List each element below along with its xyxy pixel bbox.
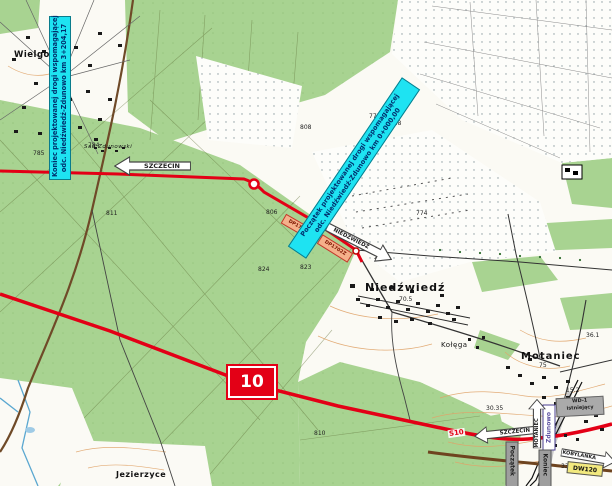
wd1-line2: istniejący xyxy=(557,404,603,413)
spot-number: 810 xyxy=(314,430,325,437)
annotation-line1: Koniec projektowanej drogi wspomagającej xyxy=(51,19,60,177)
annotation-koniec-drogi: Koniec projektowanej drogi wspomagającej… xyxy=(49,16,71,180)
arrow-label: SZCZECIN xyxy=(134,156,190,176)
direction-arrow-motaniec: MOTANIEC xyxy=(528,399,546,449)
spot-number: 70.5 xyxy=(399,296,412,303)
annotation-line2: odc. Niedźwiedź-Zdunowo km 3+204,17 xyxy=(60,19,69,177)
spot-number: 823 xyxy=(300,264,311,271)
spot-number: 824 xyxy=(258,266,269,273)
wd1-existing-label: WD-1 istniejący xyxy=(556,396,605,417)
spot-number: 774 xyxy=(416,210,427,217)
spot-number: 811 xyxy=(106,210,117,217)
arrow-label: MOTANIEC xyxy=(528,419,546,447)
spot-number: 36.1 xyxy=(586,332,599,339)
direction-arrow-szczecin-top: SZCZECIN xyxy=(114,156,192,176)
poczatek-opracowania-label: Początek xyxy=(506,442,519,486)
place-motaniec: Motaniec xyxy=(521,351,581,362)
spot-number: 808 xyxy=(300,124,311,131)
place-niedzwiedz: Niedźwiedź xyxy=(365,281,445,294)
place-kolega: Kołęga xyxy=(441,341,468,349)
route-shield-10: 10 xyxy=(228,366,276,398)
koniec-opracowania-label: Koniec xyxy=(539,450,552,486)
place-jezierzyce: Jezierzyce xyxy=(116,470,166,479)
topo-map-canvas[interactable]: Wielgowo Sad Zdunowski Niedźwiedź Motani… xyxy=(0,0,612,486)
spot-number: 30.35 xyxy=(486,405,503,412)
spot-number: 806 xyxy=(266,209,277,216)
spot-number: 15.2 xyxy=(566,387,579,394)
spot-number: 785 xyxy=(33,150,44,157)
spot-number: 75 xyxy=(539,362,547,369)
spot-number: 784 xyxy=(88,142,99,149)
